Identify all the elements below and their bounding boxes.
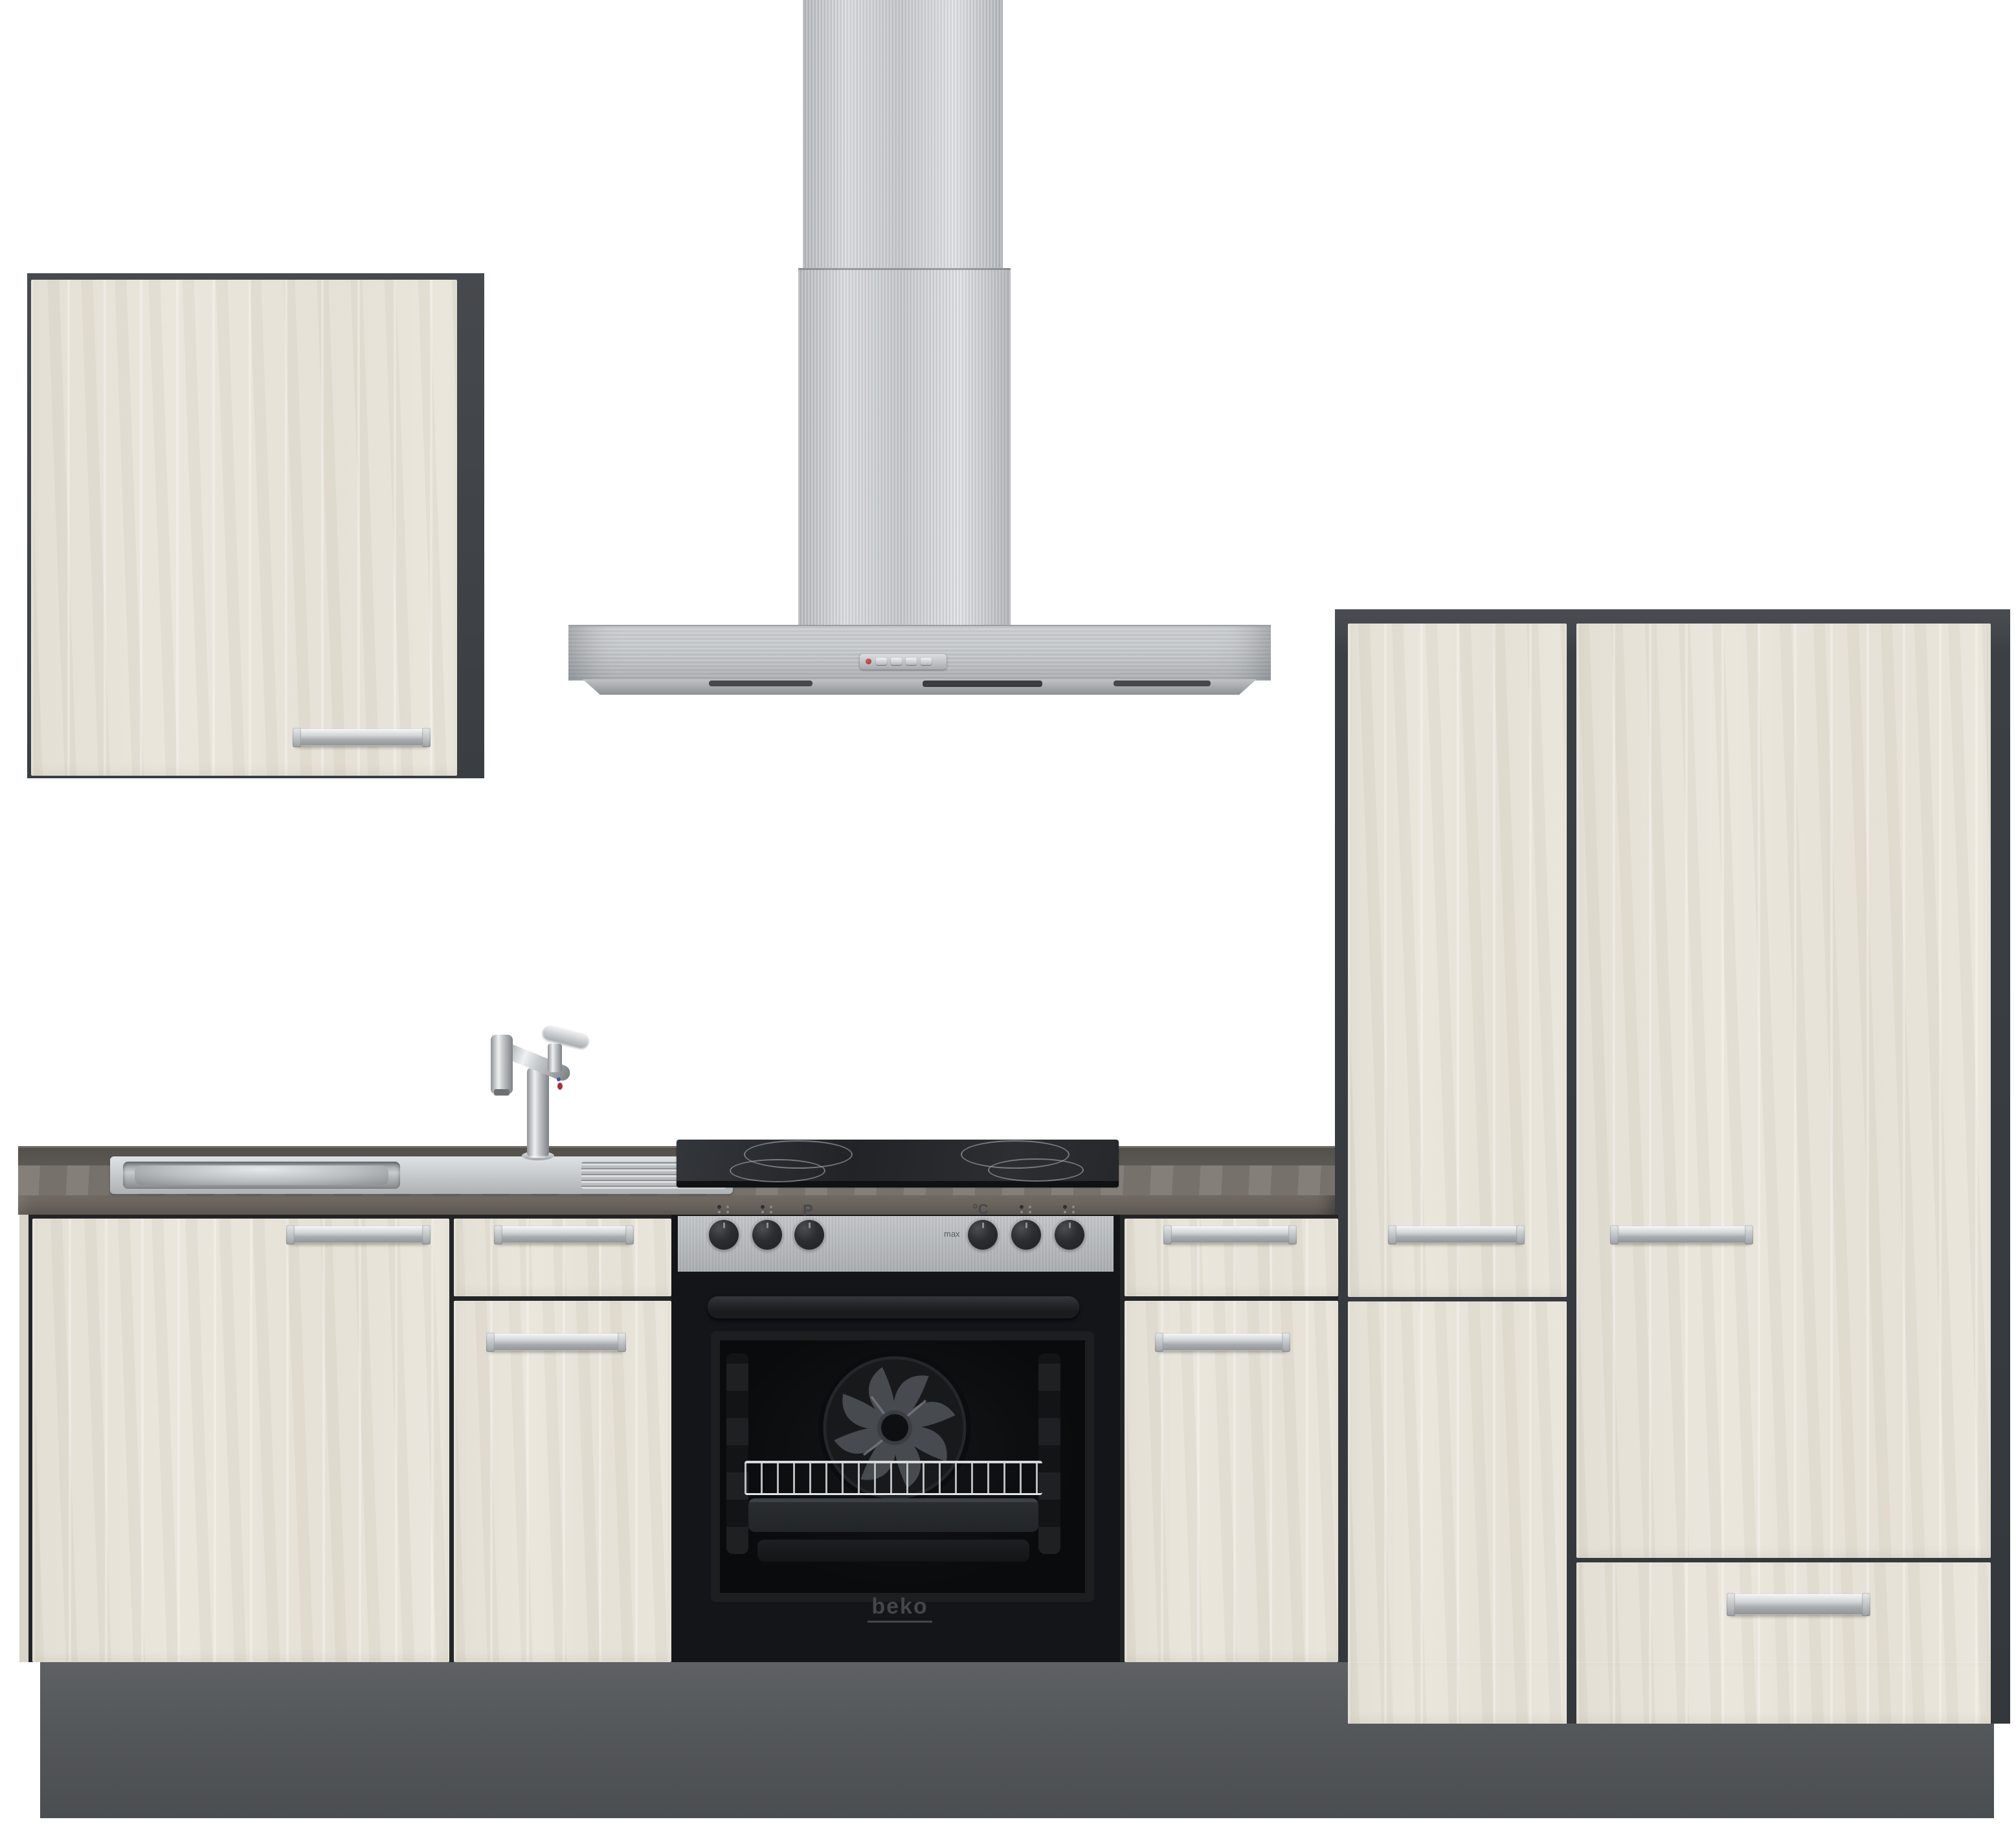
cooktop-zone-front-left [730, 1159, 825, 1182]
tall-units-right-edge [1991, 1662, 2010, 1724]
cabinet-2-door-handle [488, 1334, 624, 1351]
tall-cabinet-2-handle [1612, 1226, 1751, 1243]
tall-cabinet-2-door [1576, 624, 1991, 1558]
hob-knob [1011, 1220, 1041, 1250]
tall-cabinet-2-drawer-handle [1729, 1594, 1868, 1615]
worktop-front-edge [18, 1195, 1335, 1215]
oven-temp-max-label: max [944, 1229, 960, 1239]
oven-brand-logo: beko [868, 1594, 932, 1623]
cabinet-2-door [454, 1301, 671, 1662]
hood-chimney-upper [803, 0, 1003, 269]
hood-power-led [866, 659, 871, 664]
hood-chimney-lower [798, 268, 1011, 628]
hob-indicator-dots [758, 1204, 776, 1215]
hob-indicator-dots [1017, 1204, 1035, 1215]
hob-knob [752, 1220, 782, 1250]
wall-cabinet-door [31, 280, 457, 776]
hood-speed-button [876, 658, 887, 665]
oven-function-knob-label: P [803, 1202, 813, 1220]
sink-cabinet-door [32, 1219, 449, 1662]
faucet-lever-neck [548, 1044, 562, 1072]
tall-cabinet-1-lower-door-bottom [1348, 1662, 1567, 1724]
hood-filter-slot [1114, 681, 1211, 686]
oven-temp-knob [968, 1220, 998, 1250]
tall-cabinet-2-drawer-bottom [1576, 1662, 1991, 1724]
hood-light-button [921, 658, 932, 665]
hood-control-panel [860, 654, 946, 670]
oven-tray-shadow [757, 1540, 1029, 1562]
faucet-temp-dot-red [557, 1083, 563, 1090]
hood-filter-slot [923, 681, 1042, 687]
hob-knob [1055, 1220, 1084, 1250]
hob-knob [709, 1220, 739, 1250]
oven-cavity-rail-right [1038, 1353, 1060, 1554]
oven-door-handle [708, 1296, 1079, 1318]
oven-control-panel [678, 1216, 1114, 1272]
sink-basin-bowl [135, 1165, 388, 1185]
cooktop-front-edge [677, 1181, 1119, 1188]
cabinet-3-door [1125, 1301, 1338, 1662]
hood-speed-button [891, 658, 902, 665]
cabinet-2-drawer-handle [496, 1226, 632, 1243]
oven-function-knob [794, 1220, 824, 1250]
cooktop-zone-front-right [988, 1158, 1084, 1182]
faucet-temp-dot-blue [557, 1077, 561, 1081]
oven-wire-rack [745, 1461, 1042, 1495]
hood-speed-button [906, 658, 917, 665]
oven-baking-tray [748, 1498, 1038, 1532]
wall-cabinet-handle [295, 729, 429, 746]
sink-cabinet-handle [288, 1226, 429, 1243]
cabinet-3-drawer-handle [1165, 1226, 1295, 1243]
faucet-aerator [494, 1089, 510, 1096]
tall-units-gap [1567, 1662, 1576, 1724]
tall-cabinet-1-upper-door [1348, 624, 1567, 1297]
hob-indicator-dots [715, 1204, 733, 1215]
base-row-left-side-panel [19, 1215, 28, 1662]
tall-cabinet-1-handle [1390, 1226, 1523, 1243]
kitchen-product-photo: P °C max beko [0, 0, 2016, 1835]
oven-temp-knob-label: °C [972, 1201, 989, 1218]
tall-cabinet-1-lower-door [1348, 1301, 1567, 1724]
cabinet-3-door-handle [1157, 1334, 1288, 1351]
faucet-spout-head [491, 1035, 513, 1094]
hood-canopy [568, 625, 1271, 681]
hob-indicator-dots [1060, 1204, 1079, 1215]
hood-filter-slot [709, 681, 812, 686]
oven-cavity-rail-left [726, 1353, 748, 1554]
faucet-body [527, 1067, 549, 1158]
